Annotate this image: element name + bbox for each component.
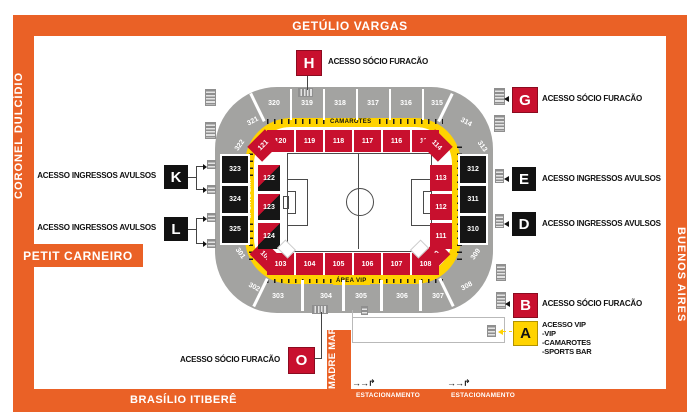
section-105[interactable]: 105 [325,253,352,275]
section-119[interactable]: 119 [296,130,323,152]
access-text-b: ACESSO SÓCIO FURACÃO [542,299,642,308]
arrow-right-icon [203,241,207,247]
section-311[interactable]: 311 [460,186,486,213]
access-text-a-0: ACESSO VIP [542,320,586,329]
access-text-e: ACESSO INGRESSOS AVULSOS [542,174,661,183]
section-111[interactable]: 111 [430,223,452,249]
section-315[interactable]: 315 [425,100,449,107]
section-306[interactable]: 306 [390,293,414,300]
parking-arrows-icon: →→↱↳→→ [352,378,397,389]
access-box-h[interactable]: H [296,50,322,76]
access-box-a[interactable]: A [513,321,538,346]
access-box-k[interactable]: K [164,165,188,189]
separator [422,89,425,120]
section-316[interactable]: 316 [394,100,418,107]
section-124[interactable]: 124 [258,223,280,249]
separator [356,89,359,120]
access-text-a-2: -CAMAROTES [542,338,591,347]
access-text-d: ACESSO INGRESSOS AVULSOS [542,219,661,228]
section-319[interactable]: 319 [295,100,319,107]
section-323[interactable]: 323 [222,156,248,183]
section-107[interactable]: 107 [383,253,410,275]
separator [290,89,293,120]
bracket [188,229,196,230]
street-label-petit-carneiro: PETIT CARNEIRO [23,249,133,263]
access-box-g[interactable]: G [512,87,538,113]
stairs-icon [206,123,215,138]
section-325[interactable]: 325 [222,216,248,243]
access-text-g: ACESSO SÓCIO FURACÃO [542,94,642,103]
access-box-d[interactable]: D [512,212,536,236]
street-petit-carneiro: PETIT CARNEIRO [13,244,143,267]
access-text-h: ACESSO SÓCIO FURACÃO [328,57,428,66]
stairs-icon [208,186,215,193]
street-getulio-vargas: GETÚLIO VARGAS [13,15,687,36]
stairs-icon [497,293,505,308]
stairs-icon [488,326,495,336]
access-text-l: ACESSO INGRESSOS AVULSOS [36,223,156,232]
parking-arrows-icon: →→↱↳→→ [447,378,492,389]
bracket [196,166,197,190]
access-box-e[interactable]: E [512,167,536,191]
section-113[interactable]: 113 [430,165,452,191]
arrow-left-icon [504,96,509,102]
arrow-left-icon [498,329,503,335]
access-letter: K [171,169,182,186]
section-112[interactable]: 112 [430,194,452,220]
camarotes-band-label: CAMAROTES [327,119,374,126]
section-324[interactable]: 324 [222,186,248,213]
access-letter: G [519,92,531,109]
bracket [196,166,203,167]
goal-left [283,196,289,209]
access-box-o[interactable]: O [288,347,315,374]
access-o-connector [314,312,322,359]
section-317[interactable]: 317 [361,100,385,107]
arrow-right-icon [203,187,207,193]
section-117[interactable]: 117 [354,130,381,152]
dashed-line [503,331,512,332]
street-label-buenos-aires: BUENOS AIRES [666,200,687,350]
section-118[interactable]: 118 [325,130,352,152]
section-303[interactable]: 303 [266,293,290,300]
section-307[interactable]: 307 [426,293,450,300]
access-text-a-3: -SPORTS BAR [542,347,591,356]
access-letter: H [304,55,315,72]
section-103[interactable]: 103 [267,253,294,275]
stairs-icon [208,161,215,168]
street-label-coronel-dulcidio: CORONEL DULCÍDIO [13,55,34,215]
section-104[interactable]: 104 [296,253,323,275]
vip-corridor [352,317,505,343]
arrow-left-icon [505,301,510,307]
access-h-connector [307,74,308,90]
stairs-icon [497,265,505,280]
access-letter: B [520,297,531,314]
section-116[interactable]: 116 [383,130,410,152]
arrow-right-icon [203,164,207,170]
parking-label-1: ESTACIONAMENTO [350,392,426,399]
stadium-access-map: GETÚLIO VARGAS CORONEL DULCÍDIO BUENOS A… [0,0,700,420]
separator [342,280,345,311]
stairs-icon [495,89,504,104]
access-text-k: ACESSO INGRESSOS AVULSOS [36,171,156,180]
stairs-icon [496,215,503,227]
field-center-circle [346,188,374,216]
stairs-icon [496,170,503,182]
bracket [188,177,196,178]
bracket [196,189,203,190]
parking-label-2: ESTACIONAMENTO [445,392,521,399]
arrow-left-icon [504,221,509,227]
section-123[interactable]: 123 [258,194,280,220]
separator [380,280,383,311]
arrow-left-icon [504,176,509,182]
access-text-a-1: -VIP [542,329,556,338]
football-field [287,153,432,252]
areavip-band-label: ÁREA VIP [333,278,370,285]
separator [419,280,422,311]
stadium-bowl: CAMAROTES ÁREA VIP SPORTS BAR 120 119 11… [195,85,505,317]
section-312[interactable]: 312 [460,156,486,183]
separator [301,280,304,311]
section-304[interactable]: 304 [314,293,338,300]
bracket [196,243,203,244]
stairs-icon [208,214,215,221]
section-318[interactable]: 318 [328,100,352,107]
access-box-l[interactable]: L [164,217,188,241]
street-label-madre-maria: MADRE MARIA [327,330,351,389]
bracket [196,218,197,244]
separator [389,89,392,120]
separator [323,89,326,120]
access-letter: A [520,325,531,342]
stairs-icon [208,240,215,247]
access-letter: L [171,221,180,238]
bracket [196,218,203,219]
arrow-right-icon [203,216,207,222]
access-letter: E [519,171,529,188]
access-box-b[interactable]: B [513,293,538,318]
section-320[interactable]: 320 [262,100,286,107]
access-text-o: ACESSO SÓCIO FURACÃO [120,355,280,364]
street-label-brasilio-itibere: BRASÍLIO ITIBERÊ [130,389,237,412]
section-310[interactable]: 310 [460,216,486,243]
stairs-icon [362,307,367,314]
access-letter: O [296,352,308,369]
vip-corridor-connector [352,310,353,317]
access-letter: D [519,216,530,233]
stairs-icon [206,90,215,105]
section-305[interactable]: 305 [349,293,373,300]
stairs-icon [495,116,504,131]
stairs-icon [299,89,312,96]
section-106[interactable]: 106 [354,253,381,275]
street-label-top: GETÚLIO VARGAS [292,19,408,33]
section-122[interactable]: 122 [258,165,280,191]
